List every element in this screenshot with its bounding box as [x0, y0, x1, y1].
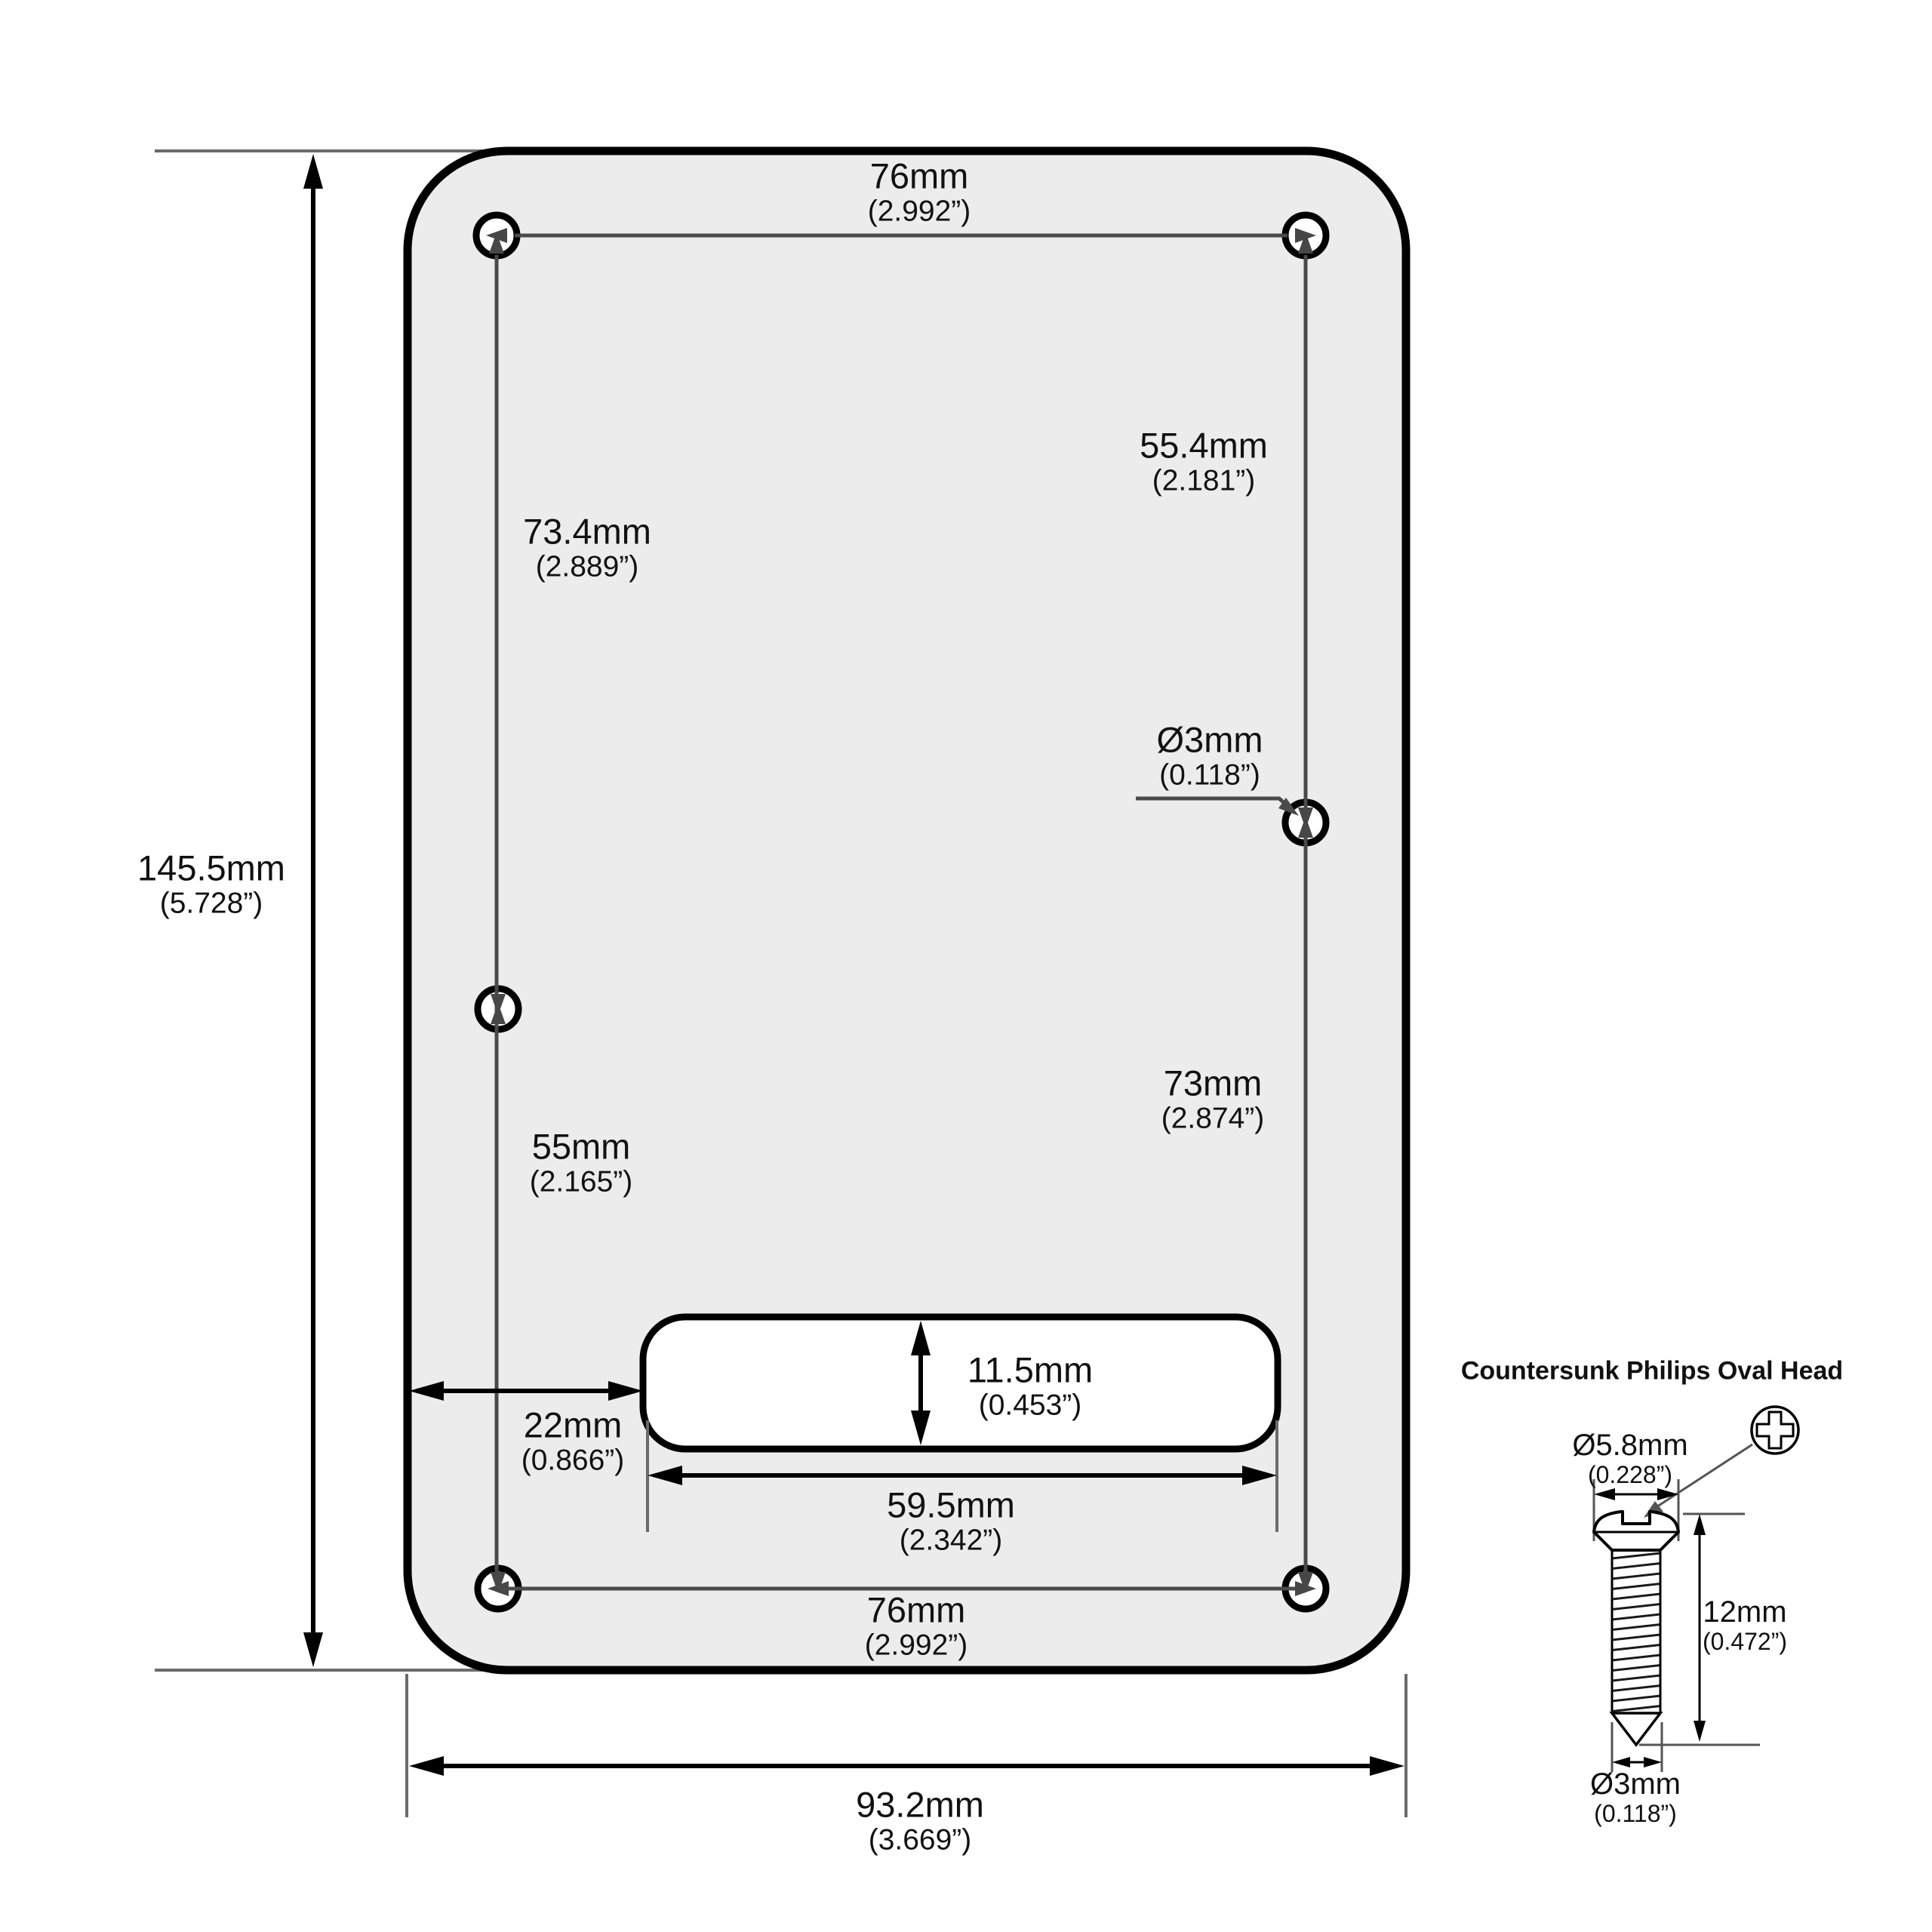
dim-value-inches: (2.889”)	[523, 551, 651, 584]
dim-overall-height-label: 145.5mm (5.728”)	[137, 849, 285, 921]
arrow-left-icon	[1594, 1488, 1615, 1500]
dim-hole-diameter-label: Ø3mm (0.118”)	[1157, 721, 1263, 792]
dim-value: 145.5mm	[137, 849, 285, 888]
dim-value-inches: (5.728”)	[137, 888, 285, 921]
arrow-down-icon	[1694, 1721, 1706, 1742]
dim-value: 76mm	[868, 157, 971, 195]
dim-value-inches: (0.118”)	[1157, 759, 1263, 792]
dim-lower-right-label: 73mm (2.874”)	[1161, 1064, 1265, 1136]
dim-lower-left-label: 55mm (2.165”)	[530, 1128, 633, 1199]
dim-top-width-label: 76mm (2.992”)	[868, 157, 971, 229]
backplate-technical-drawing: 76mm (2.992”) 55.4mm (2.181”) 73.4mm (2.…	[0, 0, 1932, 1932]
dim-value-inches: (2.992”)	[865, 1629, 968, 1663]
screw-head-diameter-label: Ø5.8mm (0.228”)	[1572, 1429, 1687, 1488]
screw-length-label: 12mm (0.472”)	[1703, 1596, 1787, 1655]
dim-value: 73mm	[1161, 1064, 1265, 1103]
arrow-right-icon	[1370, 1756, 1404, 1776]
dim-cutout-height-label: 11.5mm (0.453”)	[968, 1351, 1093, 1423]
dim-value-inches: (3.669”)	[856, 1824, 984, 1857]
dim-value-inches: (0.472”)	[1703, 1628, 1787, 1655]
dim-value-inches: (2.181”)	[1140, 465, 1268, 498]
dim-cutout-offset-label: 22mm (0.866”)	[521, 1406, 625, 1478]
dim-value-inches: (0.228”)	[1572, 1461, 1687, 1488]
arrow-left-icon	[1612, 1757, 1630, 1767]
dim-value-inches: (0.453”)	[968, 1389, 1093, 1423]
dim-value: 12mm	[1703, 1596, 1787, 1628]
dim-upper-right-label: 55.4mm (2.181”)	[1140, 426, 1268, 498]
dim-value: Ø3mm	[1157, 721, 1263, 759]
arrow-down-icon	[303, 1632, 323, 1667]
dim-overall-width-label: 93.2mm (3.669”)	[856, 1786, 984, 1857]
dim-value-inches: (2.992”)	[868, 195, 971, 229]
dim-value: 73.4mm	[523, 512, 651, 551]
dim-value: 55mm	[530, 1128, 633, 1166]
arrow-up-icon	[303, 154, 323, 189]
dim-value: 59.5mm	[887, 1486, 1015, 1524]
dim-value: Ø3mm	[1590, 1768, 1681, 1800]
arrow-up-icon	[1694, 1514, 1706, 1535]
pickup-cutout	[643, 1317, 1278, 1449]
dim-value: Ø5.8mm	[1572, 1429, 1687, 1461]
screw-thread-diameter-label: Ø3mm (0.118”)	[1590, 1768, 1681, 1827]
dim-value: 76mm	[865, 1591, 968, 1629]
dim-value: 11.5mm	[968, 1351, 1093, 1389]
dim-value: 55.4mm	[1140, 426, 1268, 465]
dim-value-inches: (0.118”)	[1590, 1800, 1681, 1827]
arrow-left-icon	[409, 1756, 444, 1776]
dim-value-inches: (2.165”)	[530, 1166, 633, 1199]
dim-upper-left-label: 73.4mm (2.889”)	[523, 512, 651, 584]
arrow-right-icon	[1644, 1757, 1662, 1767]
screw-title: Countersunk Philips Oval Head	[1461, 1357, 1843, 1386]
dim-value-inches: (2.342”)	[887, 1524, 1015, 1558]
dim-cutout-width-label: 59.5mm (2.342”)	[887, 1486, 1015, 1558]
screw-thread-shank	[1612, 1550, 1660, 1713]
dim-bottom-width-label: 76mm (2.992”)	[865, 1591, 968, 1663]
dim-value: 22mm	[521, 1406, 625, 1444]
screw-tip	[1612, 1713, 1660, 1745]
dim-value-inches: (2.874”)	[1161, 1103, 1265, 1136]
dim-value: 93.2mm	[856, 1786, 984, 1824]
dim-value-inches: (0.866”)	[521, 1444, 625, 1478]
